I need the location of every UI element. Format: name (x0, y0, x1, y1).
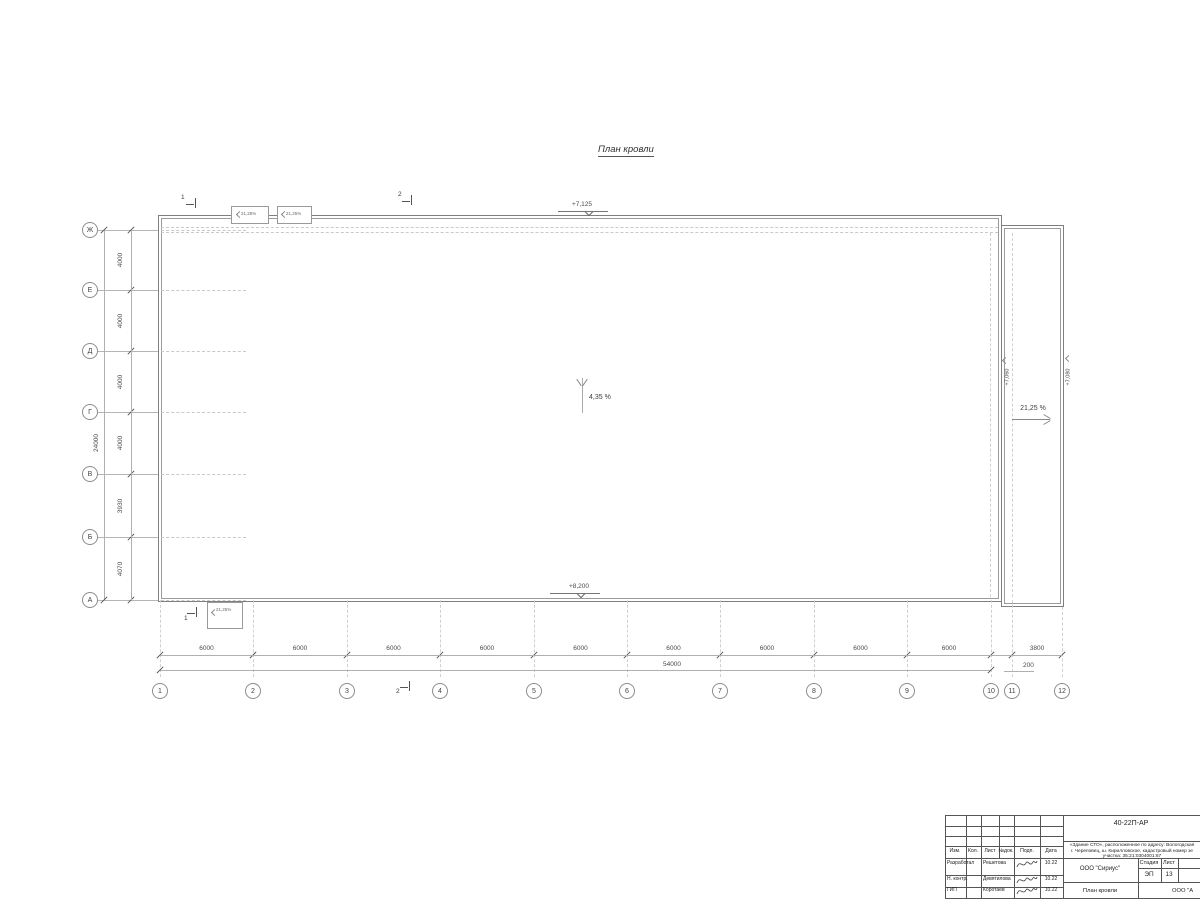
titleblock-header-col: Дата (1045, 849, 1057, 855)
axis-line-dashed (720, 600, 721, 677)
titleblock-line (945, 826, 1063, 827)
signrow-role: Н. контр. (947, 877, 968, 883)
section-arrow-icon (195, 198, 196, 208)
row-dim-label: 4000 (118, 436, 125, 450)
canopy-slope-label: 21,25% (216, 607, 231, 612)
axis-line-dashed (627, 600, 628, 677)
titleblock-header-col: №док. (998, 849, 1013, 855)
section-mark-2: 2 (396, 688, 400, 695)
titleblock-line (1138, 868, 1200, 869)
row-axis-bubble: В (82, 466, 98, 482)
sheet-label: Лист (1163, 860, 1175, 866)
titleblock-line (1040, 815, 1041, 898)
section-arrow-icon (402, 201, 410, 202)
row-dim-label: 4070 (118, 561, 125, 575)
right-slope-label: 21,25 % (1012, 405, 1054, 412)
sheet-value: 13 (1165, 871, 1172, 878)
axis-line-dashed (253, 600, 254, 677)
section-mark-2: 2 (398, 191, 402, 198)
titleblock-line (1014, 815, 1015, 898)
elevation-right-inner: +7,060 (1005, 369, 1011, 386)
axis-line-dashed (161, 412, 246, 413)
signature (1016, 885, 1038, 897)
roof-outline (158, 215, 1002, 602)
axis-line-dashed (534, 600, 535, 677)
col-axis-bubble: 7 (712, 683, 728, 699)
col-axis-bubble: 5 (526, 683, 542, 699)
col-dim-label: 6000 (199, 646, 213, 653)
col-dim-label: 6000 (853, 646, 867, 653)
col-axis-bubble: 4 (432, 683, 448, 699)
col-total-dim-line (160, 670, 991, 671)
row-dim-label: 4000 (118, 313, 125, 327)
axis-line-dashed (814, 600, 815, 677)
signrow-name: Решетова (983, 861, 1006, 867)
col-axis-bubble: 9 (899, 683, 915, 699)
row-axis-bubble: А (82, 592, 98, 608)
axis-line-dashed (440, 600, 441, 677)
canopy-slope-label: 21,25% (241, 211, 256, 216)
titleblock-border (945, 815, 946, 898)
axis-line-dashed (161, 230, 246, 231)
col-dim-label: 6000 (293, 646, 307, 653)
axis-line-dashed (160, 600, 161, 677)
signrow-date: 10.22 (1045, 861, 1058, 867)
organization-name: ООО "А (1172, 888, 1193, 895)
col-dim-label: 3800 (1030, 646, 1044, 653)
row-dim-label: 4000 (118, 374, 125, 388)
col-axis-bubble: 3 (339, 683, 355, 699)
titleblock-line (1161, 858, 1162, 882)
main-slope-label: 4,35 % (589, 394, 611, 401)
titleblock-line (966, 815, 967, 898)
titleblock-line (981, 815, 982, 898)
roof-outline-inner (161, 218, 999, 599)
row-axis-bubble: Ж (82, 222, 98, 238)
parapet-dashed-line (161, 227, 998, 228)
section-arrow-icon (409, 681, 410, 691)
row-axis-bubble: Г (82, 404, 98, 420)
signrow-date: 10.22 (1045, 888, 1058, 894)
col-total-dim-label: 54000 (663, 662, 681, 669)
col-dim-label: 6000 (666, 646, 680, 653)
stage-value: ЭП (1144, 871, 1153, 878)
elevation-top-line (558, 211, 608, 212)
elevation-bottom: +8,200 (553, 584, 605, 591)
elevation-top: +7,125 (556, 202, 608, 209)
parapet-dashed-line (161, 232, 998, 233)
signature (1016, 858, 1038, 870)
section-arrow-icon (186, 204, 194, 205)
section-mark-1: 1 (181, 194, 185, 201)
dim-leader-line (1004, 671, 1034, 672)
axis-line-dashed (161, 537, 246, 538)
signrow-role: Разработал (947, 861, 974, 867)
section-arrow-icon (187, 613, 195, 614)
col-axis-bubble: 12 (1054, 683, 1070, 699)
titleblock-header-col: Изм. (949, 849, 960, 855)
section-arrow-icon (411, 195, 412, 205)
row-axis-bubble: Е (82, 282, 98, 298)
col-dim-label: 6000 (942, 646, 956, 653)
right-slope-arrow-line (1012, 419, 1050, 420)
axis-line-dashed (347, 600, 348, 677)
axis-line-dashed (991, 600, 992, 677)
titleblock-line (945, 846, 1063, 847)
col-axis-bubble: 8 (806, 683, 822, 699)
project-address-line: участка: 35:21:0304001:67 (1064, 854, 1200, 860)
col-dim-label: 200 (1023, 663, 1034, 670)
canopy-slope-label: 21,25% (286, 211, 301, 216)
axis-line-dashed (907, 600, 908, 677)
col-axis-bubble: 10 (983, 683, 999, 699)
row-dim-line (131, 230, 132, 600)
axis-line-dashed (1062, 607, 1063, 677)
axis-line-dashed (161, 351, 246, 352)
signrow-role: ГИП (947, 888, 957, 894)
elevation-bottom-line (550, 593, 600, 594)
col-dim-line (160, 655, 1062, 656)
elevation-right-outer: +7,080 (1066, 369, 1072, 386)
signrow-date: 10.22 (1045, 877, 1058, 883)
titleblock-line (1063, 841, 1200, 842)
titleblock-border (945, 815, 1200, 816)
col-dim-label: 6000 (573, 646, 587, 653)
axis-line-dashed (1012, 600, 1013, 677)
col-axis-bubble: 6 (619, 683, 635, 699)
leader-tick-icon (1065, 355, 1072, 362)
signrow-name: Девятилова (983, 877, 1011, 883)
row-total-dim-label: 24000 (94, 434, 101, 452)
titleblock-line (1063, 882, 1200, 883)
design-company: ООО "Сириус" (1080, 866, 1120, 873)
axis-line-dashed (1012, 233, 1013, 597)
col-axis-bubble: 2 (245, 683, 261, 699)
stage-label: Стадия (1140, 860, 1159, 866)
row-axis-bubble: Д (82, 343, 98, 359)
titleblock-line (1178, 858, 1179, 882)
titleblock-border (945, 898, 1200, 899)
sheet-title: План кровли (1083, 888, 1117, 895)
drawing-title: План кровли (598, 144, 654, 157)
axis-line-dashed (161, 600, 246, 601)
row-total-dim-line (104, 230, 105, 600)
drawing-sheet: План кровли +7,125 +8,200 4,35 % 21,25 %… (0, 0, 1200, 900)
row-dim-label: 3930 (118, 498, 125, 512)
titleblock-line (945, 836, 1063, 837)
section-arrow-icon (196, 607, 197, 617)
row-dim-label: 4000 (118, 253, 125, 267)
titleblock-header-col: Лист (984, 849, 995, 855)
row-axis-bubble: Б (82, 529, 98, 545)
section-arrow-icon (400, 687, 408, 688)
titleblock-header-col: Кол. (968, 849, 978, 855)
signrow-name: Коротаев (983, 888, 1005, 894)
col-dim-label: 6000 (480, 646, 494, 653)
col-dim-label: 6000 (386, 646, 400, 653)
axis-line-dashed (990, 233, 991, 597)
right-canopy-outline (1001, 225, 1064, 607)
col-axis-bubble: 11 (1004, 683, 1020, 699)
col-axis-bubble: 1 (152, 683, 168, 699)
section-mark-1: 1 (184, 615, 188, 622)
col-dim-label: 6000 (760, 646, 774, 653)
document-number: 40-22П-АР (1114, 820, 1149, 828)
axis-line-dashed (161, 290, 246, 291)
titleblock-header-col: Подп. (1020, 849, 1034, 855)
axis-line-dashed (161, 474, 246, 475)
